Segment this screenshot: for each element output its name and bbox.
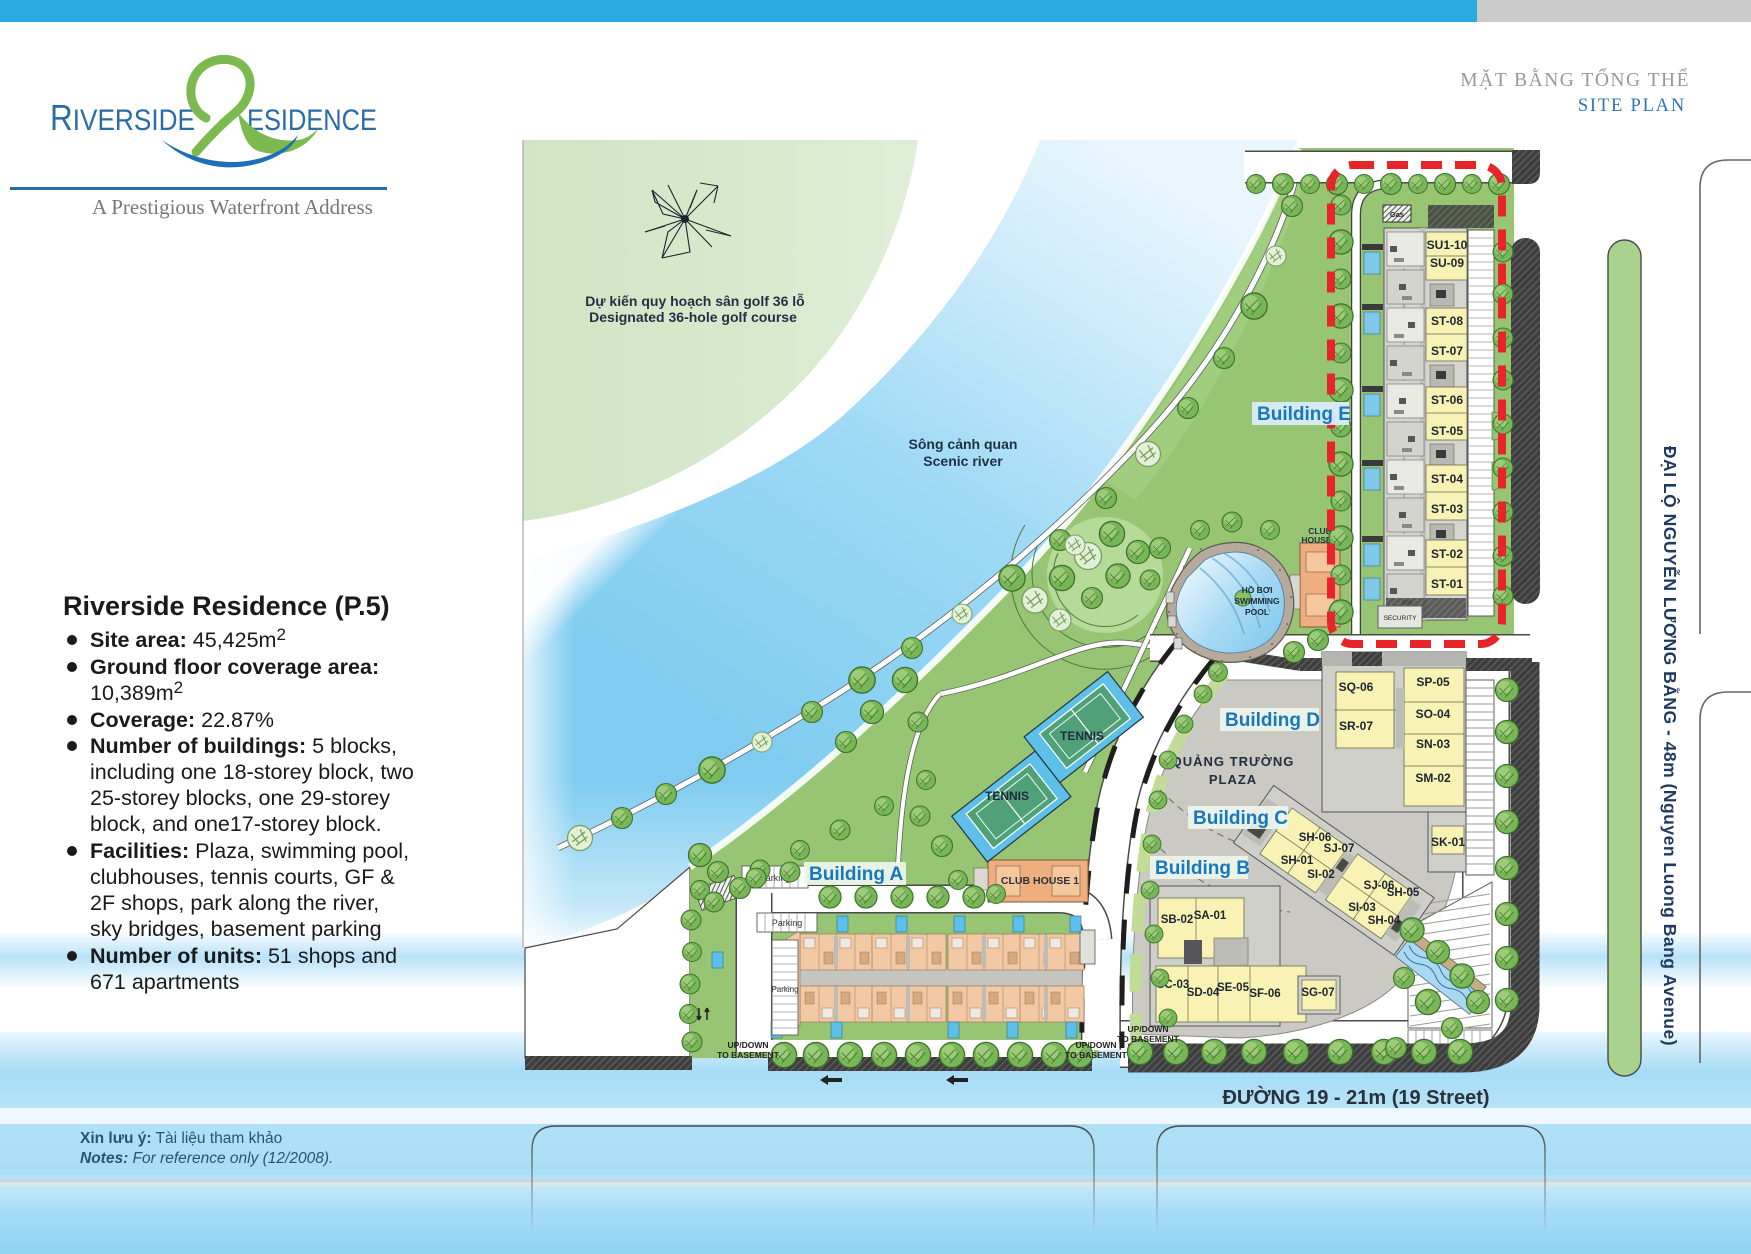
svg-text:671 apartments: 671 apartments <box>90 970 239 994</box>
svg-text:ST-01: ST-01 <box>1431 577 1463 591</box>
svg-text:SR-07: SR-07 <box>1339 719 1373 733</box>
svg-text:TO BASEMENT: TO BASEMENT <box>1065 1050 1128 1060</box>
svg-text:SJ-07: SJ-07 <box>1324 843 1355 855</box>
svg-text:Building B: Building B <box>1155 858 1250 879</box>
svg-text:SE-05: SE-05 <box>1217 982 1250 994</box>
svg-text:CLUB HOUSE 1: CLUB HOUSE 1 <box>1001 875 1079 887</box>
svg-text:SI-03: SI-03 <box>1348 902 1376 914</box>
svg-text:ESIDENCE: ESIDENCE <box>247 104 377 137</box>
svg-text:SH-05: SH-05 <box>1387 887 1420 899</box>
svg-text:sky bridges, basement parking: sky bridges, basement parking <box>90 917 382 941</box>
svg-text:clubhouses, tennis courts, GF: clubhouses, tennis courts, GF & <box>90 865 395 889</box>
svg-text:SQ-06: SQ-06 <box>1339 680 1374 694</box>
svg-text:25-storey blocks, one 29-store: 25-storey blocks, one 29-storey <box>90 786 390 810</box>
svg-text:SU-09: SU-09 <box>1430 256 1464 270</box>
svg-text:SA-01: SA-01 <box>1194 910 1227 922</box>
svg-text:including one 18-storey block,: including one 18-storey block, two <box>90 760 414 784</box>
svg-text:ST-03: ST-03 <box>1431 502 1463 516</box>
svg-text:Dự kiến quy hoạch sân golf 36: Dự kiến quy hoạch sân golf 36 lỗ <box>585 293 804 309</box>
svg-text:SD-04: SD-04 <box>1187 987 1220 999</box>
svg-text:A Prestigious Waterfront Addre: A Prestigious Waterfront Address <box>92 195 373 219</box>
svg-text:SI-02: SI-02 <box>1307 869 1335 881</box>
svg-text:Building A: Building A <box>809 864 904 885</box>
svg-text:Facilities: Plaza, swimming po: Facilities: Plaza, swimming pool, <box>90 839 409 863</box>
svg-text:Coverage: 22.87%: Coverage: 22.87% <box>90 708 274 732</box>
svg-text:SP-05: SP-05 <box>1416 675 1450 689</box>
svg-text:Number of buildings: 5 blocks,: Number of buildings: 5 blocks, <box>90 734 397 758</box>
svg-text:SH-04: SH-04 <box>1368 915 1401 927</box>
svg-text:Notes: For reference only (12/: Notes: For reference only (12/2008). <box>80 1150 333 1167</box>
svg-text:Sông cảnh quan: Sông cảnh quan <box>909 436 1018 452</box>
svg-text:SG-07: SG-07 <box>1301 987 1334 999</box>
svg-text:block, and one17-storey block.: block, and one17-storey block. <box>90 812 382 836</box>
svg-text:Gas: Gas <box>1390 210 1404 219</box>
svg-text:TENNIS: TENNIS <box>985 789 1029 803</box>
svg-text:MẶT BẰNG TỔNG THỂ: MẶT BẰNG TỔNG THỂ <box>1460 69 1690 91</box>
svg-text:Building C: Building C <box>1193 808 1288 829</box>
svg-text:Xin lưu ý: Tài liệu tham khảo: Xin lưu ý: Tài liệu tham khảo <box>80 1130 282 1147</box>
svg-text:SH-01: SH-01 <box>1281 855 1314 867</box>
svg-text:SB-02: SB-02 <box>1161 914 1194 926</box>
svg-text:SO-04: SO-04 <box>1416 707 1451 721</box>
svg-text:ST-04: ST-04 <box>1431 472 1463 486</box>
svg-text:Building D: Building D <box>1225 710 1320 731</box>
svg-text:ST-05: ST-05 <box>1431 424 1463 438</box>
svg-text:SF-06: SF-06 <box>1249 988 1280 1000</box>
svg-text:ĐƯỜNG 19 - 21m (19 Street): ĐƯỜNG 19 - 21m (19 Street) <box>1222 1085 1489 1109</box>
svg-text:RIVERSIDE: RIVERSIDE <box>50 97 195 138</box>
svg-text:Site area: 45,425m2: Site area: 45,425m2 <box>90 625 286 652</box>
svg-text:POOL: POOL <box>1245 607 1269 617</box>
svg-text:Parking: Parking <box>771 985 798 994</box>
svg-text:Building E: Building E <box>1257 404 1351 425</box>
svg-text:SM-02: SM-02 <box>1415 771 1451 785</box>
svg-text:Ground floor coverage area:: Ground floor coverage area: <box>90 655 379 679</box>
svg-text:ST-06: ST-06 <box>1431 393 1463 407</box>
svg-text:SK-01: SK-01 <box>1431 835 1465 849</box>
svg-text:10,389m2: 10,389m2 <box>90 678 183 705</box>
svg-text:TO BASEMENT: TO BASEMENT <box>717 1050 780 1060</box>
svg-text:ST-08: ST-08 <box>1431 314 1463 328</box>
svg-text:SN-03: SN-03 <box>1416 737 1450 751</box>
svg-text:ST-02: ST-02 <box>1431 547 1463 561</box>
svg-text:UP/DOWN: UP/DOWN <box>1127 1024 1168 1034</box>
svg-text:TENNIS: TENNIS <box>1060 729 1104 743</box>
svg-text:Scenic river: Scenic river <box>923 453 1003 469</box>
svg-text:UP/DOWN: UP/DOWN <box>727 1040 768 1050</box>
svg-text:SITE PLAN: SITE PLAN <box>1578 96 1686 116</box>
svg-text:Parking: Parking <box>772 918 803 928</box>
svg-text:SU1-10: SU1-10 <box>1427 238 1468 252</box>
svg-text:Number of units: 51 shops and: Number of units: 51 shops and <box>90 944 397 968</box>
svg-text:Riverside Residence (P.5): Riverside Residence (P.5) <box>63 591 390 621</box>
svg-text:Designated 36-hole golf course: Designated 36-hole golf course <box>589 309 797 325</box>
svg-text:UP/DOWN: UP/DOWN <box>1075 1040 1116 1050</box>
svg-text:HỒ BƠI: HỒ BƠI <box>1242 584 1273 595</box>
svg-text:QUẢNG TRƯỜNG: QUẢNG TRƯỜNG <box>1172 754 1295 769</box>
svg-text:SWIMMING: SWIMMING <box>1234 596 1280 606</box>
svg-text:2F shops, park along the river: 2F shops, park along the river, <box>90 891 379 915</box>
svg-text:PLAZA: PLAZA <box>1209 772 1257 787</box>
svg-text:SECURITY: SECURITY <box>1384 615 1418 622</box>
svg-text:ST-07: ST-07 <box>1431 344 1463 358</box>
svg-text:ĐẠI LỘ NGUYỄN LƯƠNG BẰNG - 48m: ĐẠI LỘ NGUYỄN LƯƠNG BẰNG - 48m (Nguyen L… <box>1660 446 1681 1046</box>
svg-text:TO BASEMENT: TO BASEMENT <box>1117 1034 1180 1044</box>
